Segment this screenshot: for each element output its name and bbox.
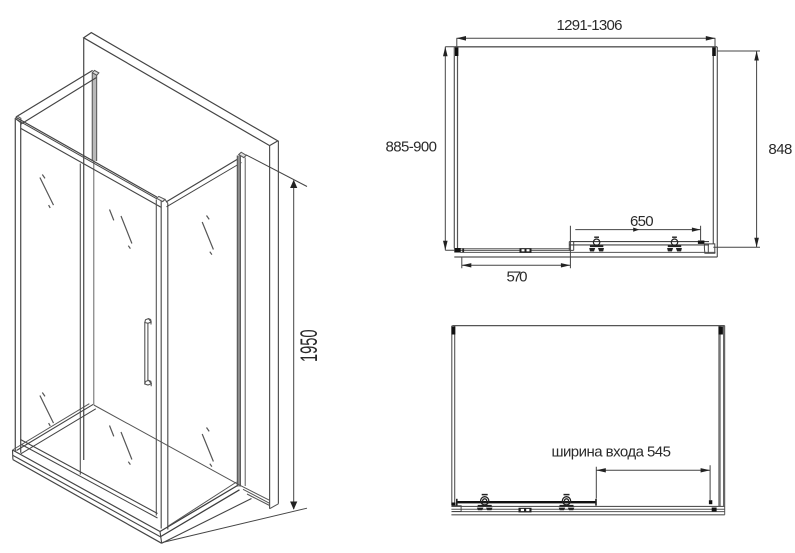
svg-text:ширина входа 545: ширина входа 545 [551, 444, 671, 461]
svg-text:1950: 1950 [296, 329, 323, 362]
svg-text:848: 848 [768, 141, 792, 158]
svg-text:570: 570 [507, 269, 528, 286]
svg-text:1291-1306: 1291-1306 [557, 17, 623, 34]
svg-text:885-900: 885-900 [386, 139, 438, 156]
svg-text:650: 650 [630, 213, 654, 230]
